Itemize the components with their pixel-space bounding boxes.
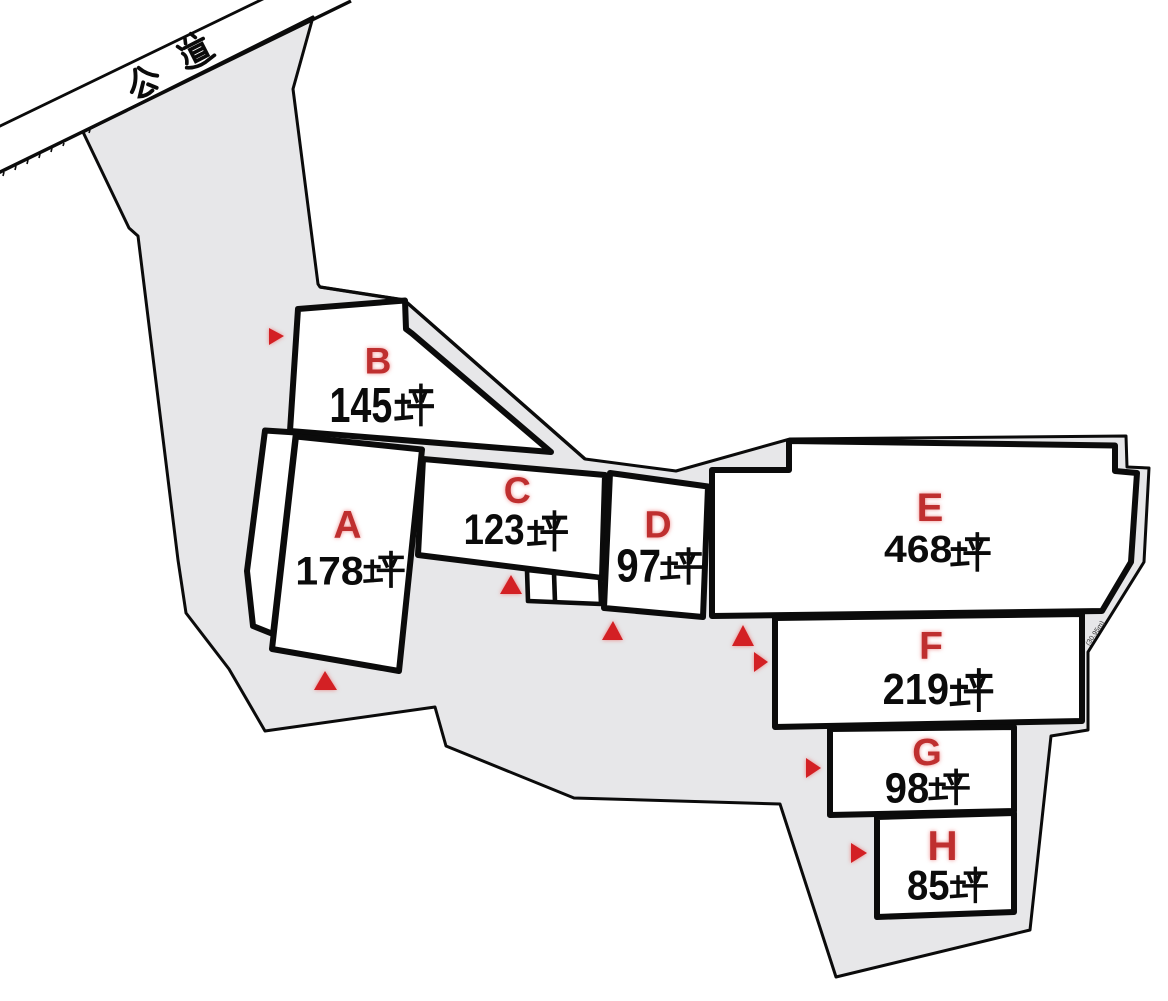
svg-text:145: 145 [330, 378, 393, 433]
svg-text:97: 97 [616, 539, 661, 591]
svg-text:F: F [919, 625, 943, 668]
svg-text:B: B [365, 340, 392, 381]
svg-text:85: 85 [907, 862, 950, 909]
svg-text:178: 178 [295, 550, 363, 594]
svg-text:98: 98 [885, 765, 929, 813]
svg-text:219: 219 [883, 666, 950, 714]
svg-text:E: E [917, 486, 944, 530]
svg-text:468: 468 [884, 529, 952, 571]
svg-text:123: 123 [464, 507, 525, 554]
svg-text:A: A [333, 504, 361, 547]
svg-text:C: C [504, 469, 531, 511]
